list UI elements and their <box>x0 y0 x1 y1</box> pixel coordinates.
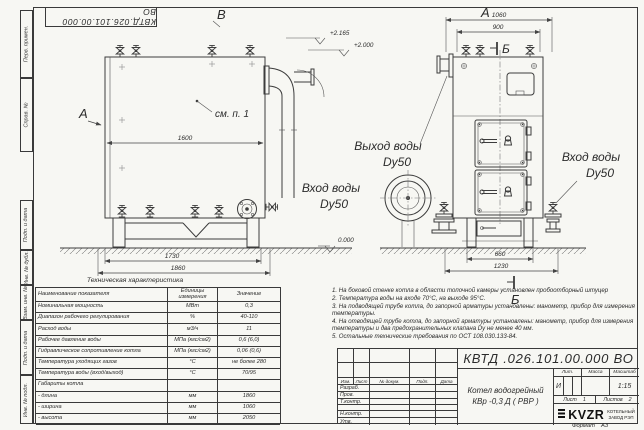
lit-value: И <box>554 377 564 396</box>
dim-1860: 1860 <box>171 265 186 272</box>
table-cell: Температура уходящих газов <box>36 358 168 369</box>
tb-blank <box>370 392 410 399</box>
boiler-front-view <box>105 46 324 248</box>
tb-blank <box>436 411 458 418</box>
tb-header-data: Дата <box>436 378 458 385</box>
sheets-cell: Листов 2 <box>596 396 639 404</box>
lower-door <box>475 170 531 215</box>
document-number: КВТД .026.101.00.000 ВО <box>458 349 639 369</box>
kvzr-logo-text: KVZR <box>568 408 604 422</box>
tb-blank <box>370 411 410 418</box>
table-cell: Номинальная мощность <box>36 302 168 313</box>
company-logo: KVZR КОТЕЛЬНЫЙ ЗАВОД РЭП <box>558 408 635 422</box>
dim-1060: 1060 <box>492 12 507 19</box>
table-cell: 2050 <box>218 414 280 425</box>
revision-cell <box>436 349 458 363</box>
scale-label: Масштаб <box>610 369 639 377</box>
table-cell: мм <box>168 392 218 403</box>
inlet-flange <box>238 200 257 219</box>
ground-hatching <box>60 248 586 254</box>
table-cell: мм <box>168 403 218 414</box>
label-water-inlet-front: Вход воды <box>302 181 360 195</box>
table-cell: 1060 <box>218 403 280 414</box>
dim-1730: 1730 <box>165 253 180 260</box>
technical-notes: 1. На боковой стенке котла в области топ… <box>332 287 638 341</box>
table-cell: - длина <box>36 392 168 403</box>
label-water-inlet-side-dn: Dy50 <box>586 166 614 180</box>
view-label-a-side: А <box>78 106 88 121</box>
table-cell <box>218 380 280 391</box>
tb-blank <box>436 392 458 399</box>
table-cell: Температура воды (вход/выход) <box>36 369 168 380</box>
tech-col-header: Наименование показателя <box>36 288 168 302</box>
sheet-value: 1 <box>583 397 586 403</box>
tb-blank <box>410 418 436 425</box>
tb-header-izm: Изм. <box>338 378 354 385</box>
revision-cell <box>410 349 436 363</box>
dim-660: 660 <box>495 251 506 258</box>
lit-label: Лит. <box>554 369 582 377</box>
elevation-boiler-top: +2.000 <box>354 42 374 49</box>
elevation-ground: 0.000 <box>338 237 354 244</box>
scale-value: 1:15 <box>610 377 639 396</box>
tb-row-nkontr: Н.контр. <box>338 411 370 418</box>
view-labels: В А А Б Б см. п. 1 <box>78 5 520 307</box>
note-line: 1. На боковой стенке котла в области топ… <box>332 287 638 294</box>
tb-blank <box>410 392 436 399</box>
panel-hatch <box>507 73 534 95</box>
tb-row-prov: Пров. <box>338 392 370 399</box>
label-water-inlet-front-dn: Dy50 <box>320 197 348 211</box>
tb-row-razrab: Разраб. <box>338 385 370 392</box>
table-cell: - ширина <box>36 403 168 414</box>
sheets-label: Листов <box>603 397 622 403</box>
table-cell: МПа (кгс/см2) <box>168 336 218 347</box>
revision-cell <box>338 349 354 363</box>
product-name: Котел водогрейный КВр -0,3 Д ( РВР ) <box>458 369 554 425</box>
tb-blank <box>573 377 582 396</box>
table-cell: 0,06 (0,6) <box>218 347 280 358</box>
dim-900: 900 <box>493 24 504 31</box>
company-name: КОТЕЛЬНЫЙ ЗАВОД РЭП <box>607 409 635 419</box>
table-cell: мм <box>168 414 218 425</box>
product-name-line1: Котел водогрейный <box>467 386 543 397</box>
tech-col-header: Значение <box>218 288 280 302</box>
table-cell: не более 280 <box>218 358 280 369</box>
revision-cell <box>354 363 370 378</box>
table-cell: 70/95 <box>218 369 280 380</box>
revision-cell <box>370 363 410 378</box>
side-inlet-valve-right <box>545 203 561 233</box>
table-cell: °С <box>168 358 218 369</box>
revision-cell <box>354 349 370 363</box>
lifting-eyes <box>461 63 537 69</box>
table-cell: % <box>168 313 218 324</box>
note-line: 2. Температура воды на входе 70°С, на вы… <box>332 295 638 302</box>
tech-table: Наименование показателя Единицы измерени… <box>35 287 281 424</box>
tb-header-dokum: № докум. <box>370 378 410 385</box>
format-word: Формат <box>572 424 595 430</box>
table-cell <box>168 380 218 391</box>
revision-cell <box>436 363 458 378</box>
label-water-outlet-dn: Dy50 <box>383 155 411 169</box>
tb-blank <box>410 385 436 392</box>
label-water-outlet: Выход воды <box>354 139 422 153</box>
table-cell: Расход воды <box>36 324 168 335</box>
title-block: Изм. Лист № докум. Подп. Дата Разраб. Пр… <box>337 348 638 424</box>
tb-blank <box>370 385 410 392</box>
callout-see-note-1: см. п. 1 <box>215 109 249 120</box>
tb-row-utv: Утв. <box>338 418 370 425</box>
mass-value <box>582 377 610 396</box>
dim-1600: 1600 <box>178 135 193 142</box>
table-cell: м3/ч <box>168 324 218 335</box>
format-label: Формат А3 <box>545 424 635 430</box>
table-cell: 0,3 <box>218 302 280 313</box>
table-cell: - высота <box>36 414 168 425</box>
tech-col-header: Единицы измерения <box>168 288 218 302</box>
note-line: 5. Остальные технические требования по О… <box>332 333 638 340</box>
tb-blank <box>436 418 458 425</box>
note-line: 3. На подводящей трубе котла, до запорно… <box>332 303 638 318</box>
outlet-stub <box>437 54 453 77</box>
table-cell: МВт <box>168 302 218 313</box>
label-water-inlet-side: Вход воды <box>562 150 620 164</box>
sheet-label: Лист <box>563 397 577 403</box>
mass-label: Масса <box>582 369 610 377</box>
drawing-sheet: Перв. примен. Справ. № Подп. и дата Инв.… <box>0 0 644 430</box>
company-name-line2: ЗАВОД РЭП <box>608 415 633 420</box>
tech-table-title: Техническая характеристика <box>35 277 235 284</box>
table-cell: 0,6 (6,0) <box>218 336 280 347</box>
table-cell: Габариты котла <box>36 380 168 391</box>
table-cell: 40-110 <box>218 313 280 324</box>
company-cell: KVZR КОТЕЛЬНЫЙ ЗАВОД РЭП <box>554 404 639 425</box>
tb-blank <box>370 418 410 425</box>
sheets-value: 2 <box>629 397 632 403</box>
elevation-stack-top: +2.165 <box>330 30 350 37</box>
table-cell: 11 <box>218 324 280 335</box>
note-line: 4. На отводящей трубе котла, до запорной… <box>332 318 638 333</box>
upper-door <box>475 120 531 167</box>
tb-blank <box>410 411 436 418</box>
revision-cell <box>338 363 354 378</box>
revision-cell <box>370 349 410 363</box>
product-name-line2: КВр -0,3 Д ( РВР ) <box>472 397 538 408</box>
table-cell: 1860 <box>218 392 280 403</box>
revision-cell <box>410 363 436 378</box>
table-cell: Диапазон рабочего регулирования <box>36 313 168 324</box>
tb-header-podp: Подп. <box>410 378 436 385</box>
view-label-v: В <box>217 7 226 22</box>
format-value: А3 <box>601 424 608 430</box>
sheet-cell: Лист 1 <box>554 396 596 404</box>
table-cell: °С <box>168 369 218 380</box>
dim-1230: 1230 <box>494 263 509 270</box>
tb-header-list: Лист <box>354 378 370 385</box>
table-cell: Гидравлическое сопротивление котла <box>36 347 168 358</box>
kvzr-logo-bars-icon <box>558 409 565 420</box>
blower-fan <box>380 170 436 247</box>
table-cell: МПа (кгс/см2) <box>168 347 218 358</box>
view-label-a-top: А <box>480 5 490 20</box>
table-cell: Рабочее давление воды <box>36 336 168 347</box>
tb-blank <box>436 385 458 392</box>
flue-outlet <box>264 66 324 198</box>
pipe-labels: Выход воды Dy50 Вход воды Dy50 Вход воды… <box>302 76 620 211</box>
section-label-b-top: Б <box>502 42 510 56</box>
tb-blank <box>564 377 573 396</box>
side-inlet-valve-left <box>432 203 456 234</box>
